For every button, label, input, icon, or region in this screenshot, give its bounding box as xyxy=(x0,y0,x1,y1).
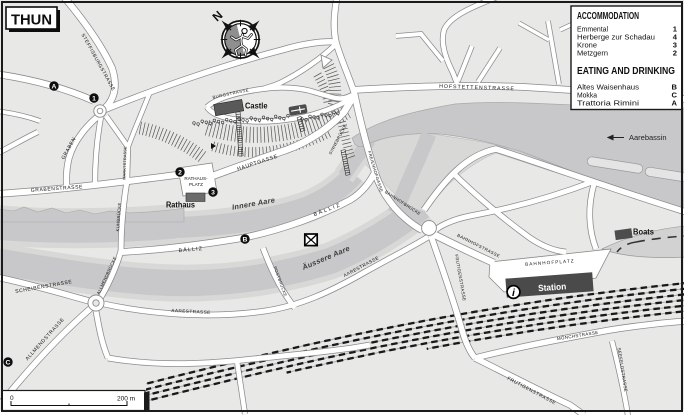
svg-text:200 m: 200 m xyxy=(117,396,135,403)
svg-text:Castle: Castle xyxy=(245,102,268,111)
svg-text:A: A xyxy=(672,99,678,108)
svg-text:EATING AND DRINKING: EATING AND DRINKING xyxy=(577,66,675,77)
svg-text:ACCOMMODATION: ACCOMMODATION xyxy=(577,11,639,22)
svg-text:PLATZ: PLATZ xyxy=(189,182,203,187)
svg-text:Station: Station xyxy=(538,281,567,293)
svg-text:0: 0 xyxy=(10,395,14,402)
svg-text:3: 3 xyxy=(211,189,215,196)
svg-text:Aarebassin: Aarebassin xyxy=(629,133,667,142)
svg-text:2: 2 xyxy=(178,169,182,176)
svg-text:Trattoria Rimini: Trattoria Rimini xyxy=(577,99,639,108)
svg-text:RATHAUS-: RATHAUS- xyxy=(184,176,208,181)
svg-text:2: 2 xyxy=(673,49,677,58)
svg-text:A: A xyxy=(52,83,57,90)
svg-text:Rathaus: Rathaus xyxy=(166,201,196,210)
svg-text:C: C xyxy=(6,359,11,366)
svg-text:Boats: Boats xyxy=(633,228,655,237)
svg-text:THUN: THUN xyxy=(11,12,52,29)
svg-text:B: B xyxy=(243,236,248,243)
svg-text:Metzgern: Metzgern xyxy=(577,49,608,58)
svg-text:1: 1 xyxy=(92,95,96,102)
